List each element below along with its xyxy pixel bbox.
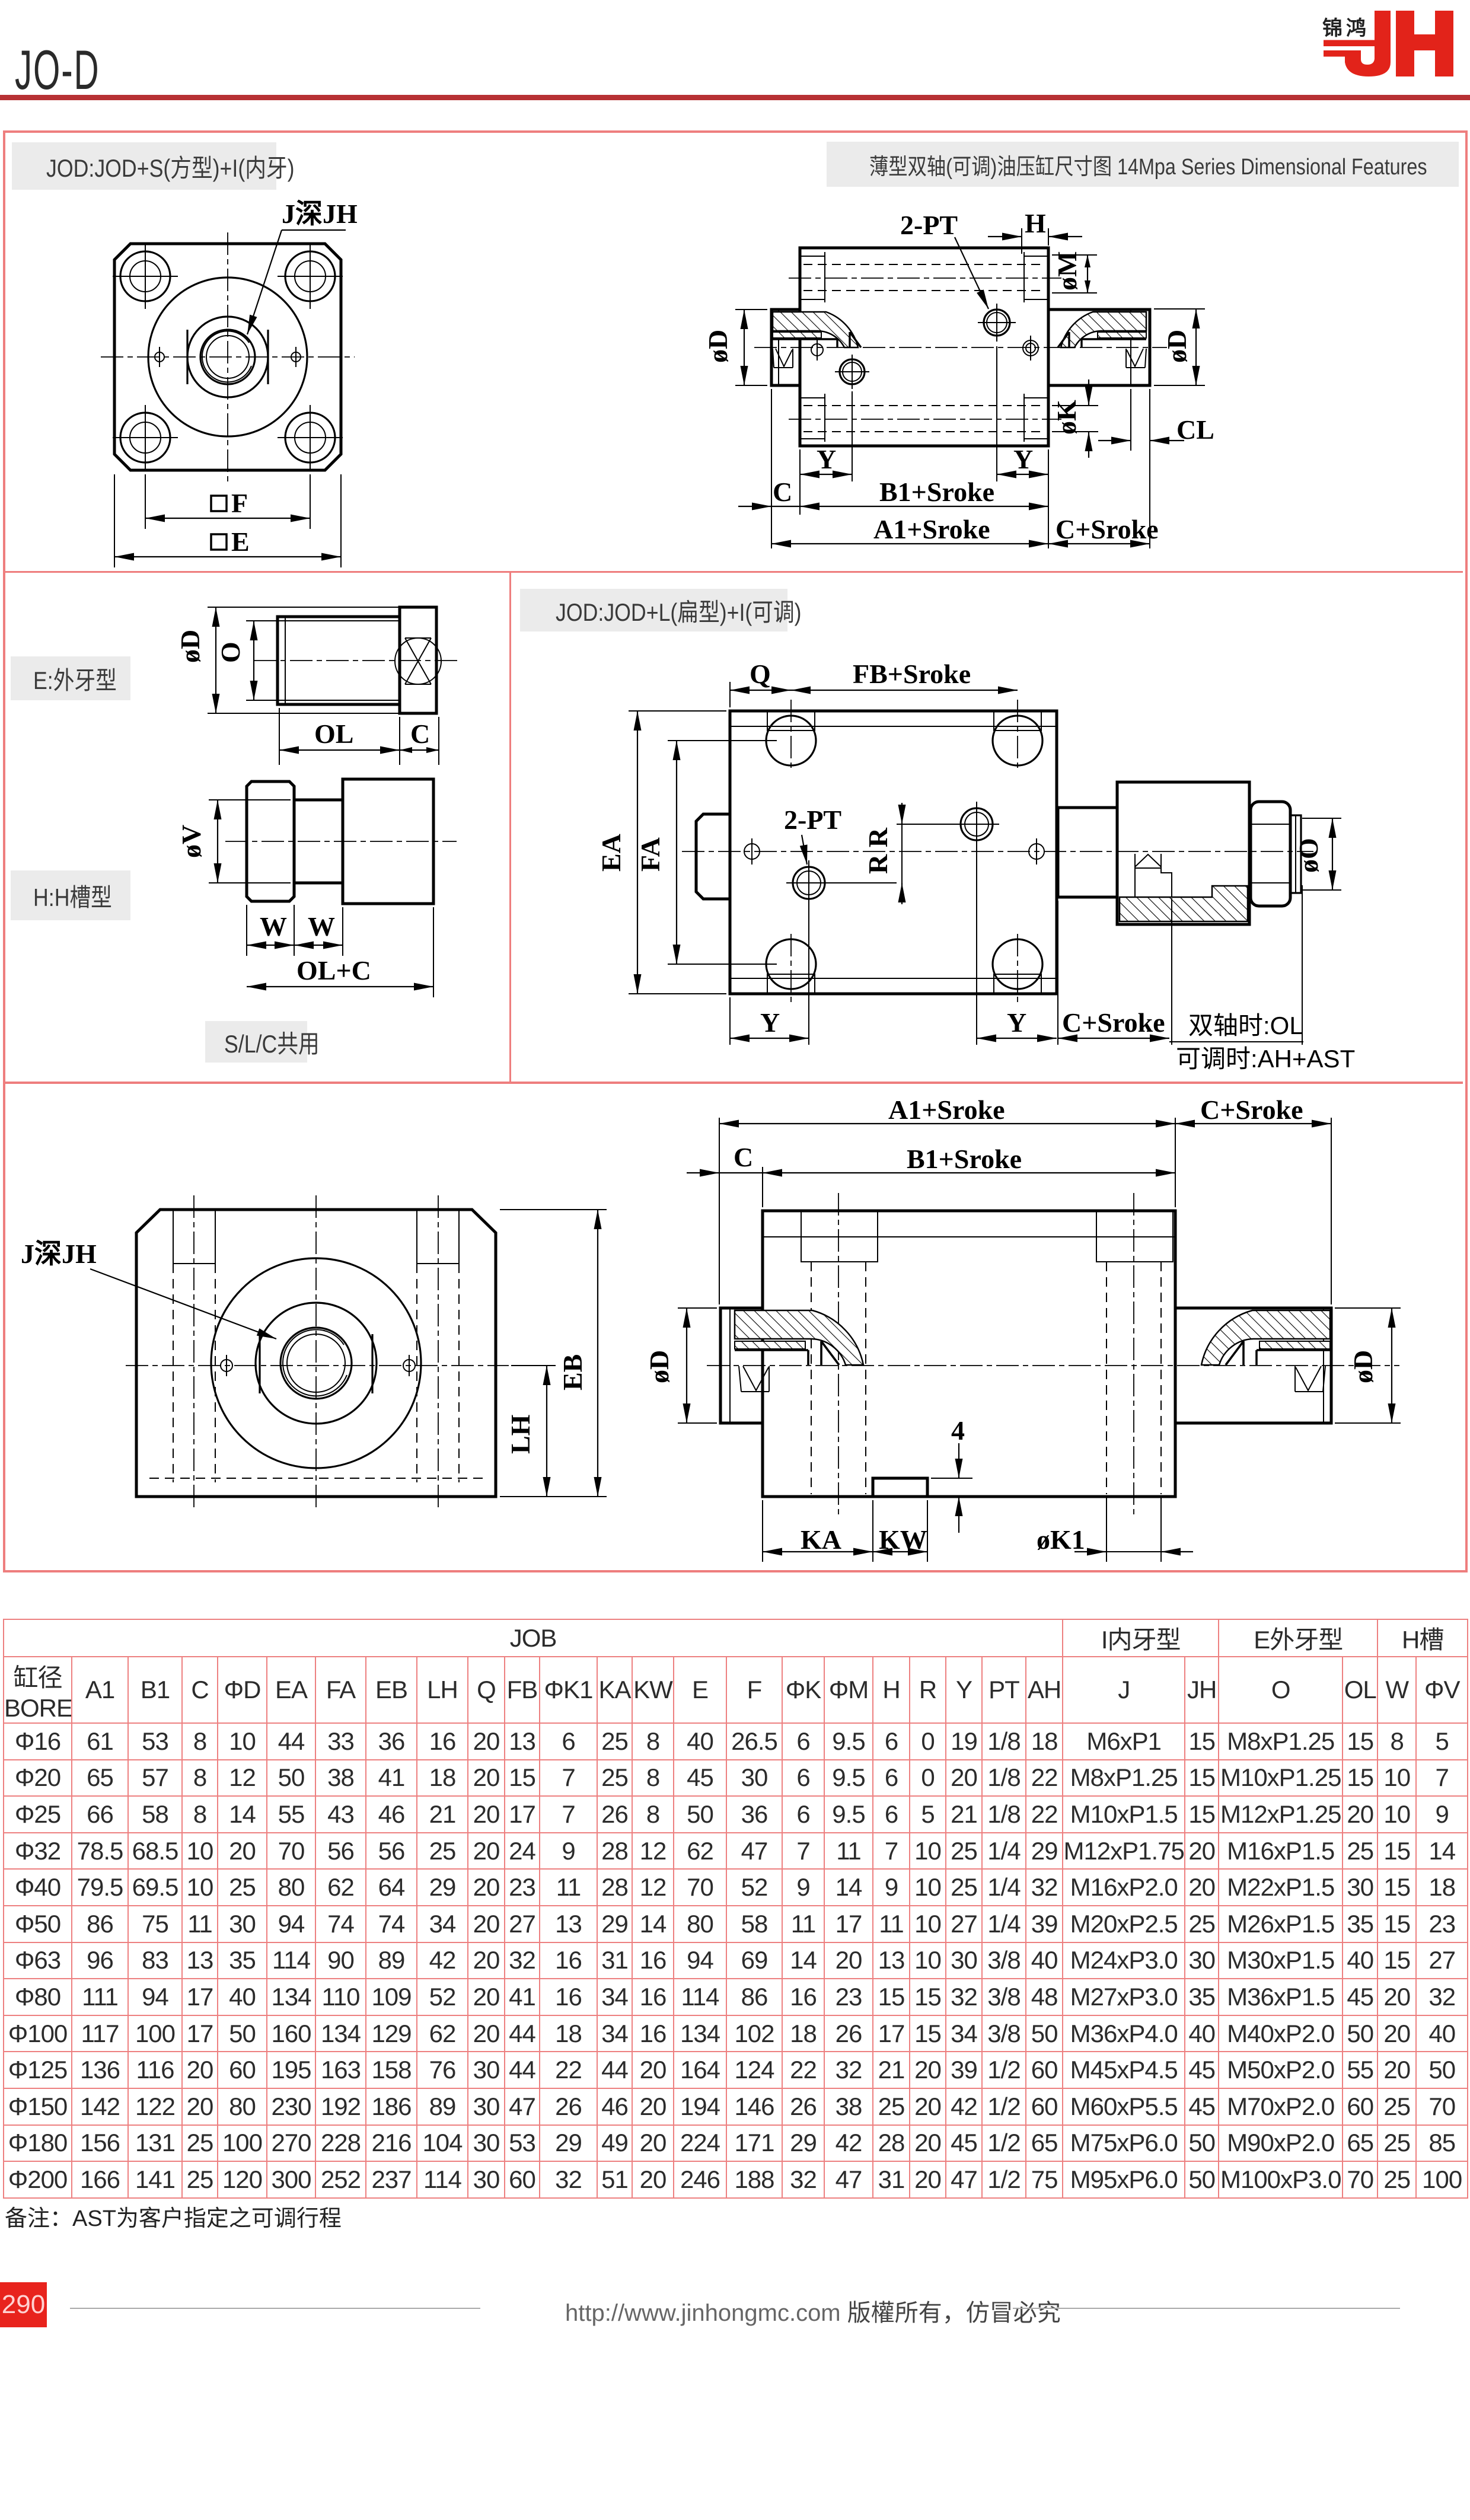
- svg-text:B1+Sroke: B1+Sroke: [907, 1144, 1022, 1174]
- svg-text:2-PT: 2-PT: [900, 210, 958, 240]
- svg-text:øD: øD: [1348, 1350, 1378, 1383]
- svg-text:Y: Y: [817, 444, 836, 474]
- svg-text:FA: FA: [635, 837, 665, 872]
- svg-text:C+Sroke: C+Sroke: [1062, 1007, 1165, 1038]
- svg-text:øV: øV: [176, 825, 206, 858]
- svg-text:J深JH: J深JH: [282, 199, 358, 229]
- svg-text:EA: EA: [596, 834, 626, 872]
- svg-text:B1+Sroke: B1+Sroke: [879, 477, 994, 507]
- svg-text:4: 4: [951, 1415, 965, 1446]
- svg-text:C+Sroke: C+Sroke: [1200, 1095, 1303, 1125]
- svg-text:E: E: [231, 527, 250, 557]
- svg-text:Y: Y: [760, 1007, 780, 1038]
- svg-text:C: C: [734, 1142, 753, 1172]
- svg-text:锦鸿: 锦鸿: [1322, 17, 1370, 40]
- svg-text:可调时:AH+AST: 可调时:AH+AST: [1176, 1045, 1355, 1073]
- svg-text:2-PT: 2-PT: [784, 805, 841, 835]
- svg-text:KW: KW: [879, 1524, 927, 1555]
- svg-text:Q: Q: [750, 659, 771, 689]
- svg-text:O: O: [215, 642, 245, 663]
- svg-text:KA: KA: [801, 1524, 841, 1555]
- svg-text:A1+Sroke: A1+Sroke: [888, 1095, 1005, 1125]
- svg-text:C+Sroke: C+Sroke: [1056, 514, 1159, 544]
- svg-text:EB: EB: [557, 1354, 588, 1390]
- svg-text:øM: øM: [1052, 251, 1082, 291]
- svg-text:øD: øD: [703, 330, 733, 363]
- svg-text:C: C: [410, 719, 430, 749]
- svg-text:øO: øO: [1293, 838, 1324, 873]
- svg-text:øK: øK: [1051, 400, 1082, 435]
- svg-text:R R: R R: [863, 827, 893, 874]
- svg-text:øD: øD: [175, 630, 205, 663]
- svg-text:øD: øD: [644, 1350, 674, 1383]
- svg-text:双轴时:OL: 双轴时:OL: [1188, 1012, 1303, 1039]
- svg-text:A1+Sroke: A1+Sroke: [873, 514, 990, 544]
- svg-text:H: H: [1025, 208, 1046, 238]
- svg-text:OL: OL: [314, 719, 353, 749]
- svg-text:J深JH: J深JH: [21, 1239, 97, 1269]
- svg-text:øD: øD: [1162, 330, 1192, 363]
- svg-text:LH: LH: [505, 1414, 535, 1454]
- svg-text:F: F: [231, 488, 248, 518]
- svg-text:FB+Sroke: FB+Sroke: [853, 659, 971, 689]
- svg-text:C: C: [773, 477, 792, 507]
- svg-text:W: W: [308, 911, 335, 942]
- svg-text:OL+C: OL+C: [296, 955, 371, 985]
- svg-text:W: W: [260, 911, 287, 942]
- svg-text:øK1: øK1: [1037, 1524, 1085, 1555]
- svg-text:Y: Y: [1007, 1007, 1026, 1038]
- svg-text:Y: Y: [1013, 444, 1033, 474]
